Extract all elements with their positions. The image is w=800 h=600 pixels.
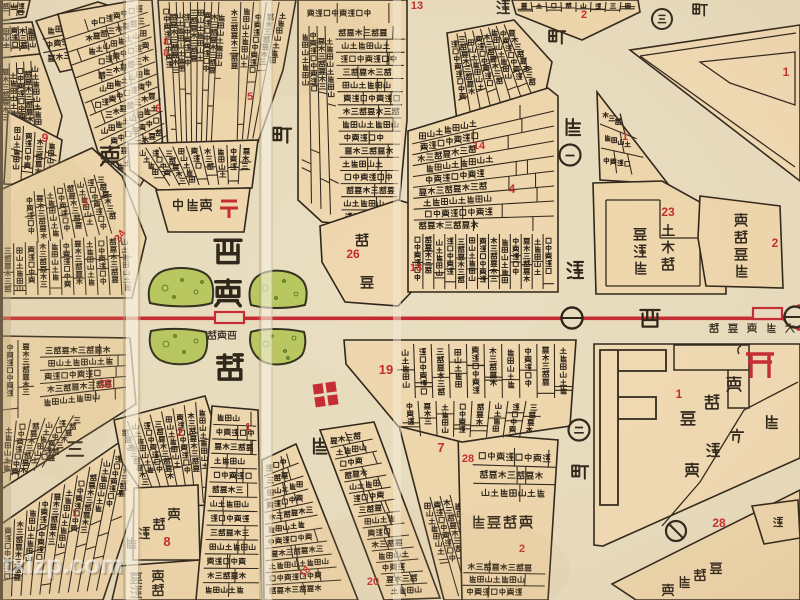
svg-text:txlzp.com: txlzp.com — [3, 549, 123, 579]
